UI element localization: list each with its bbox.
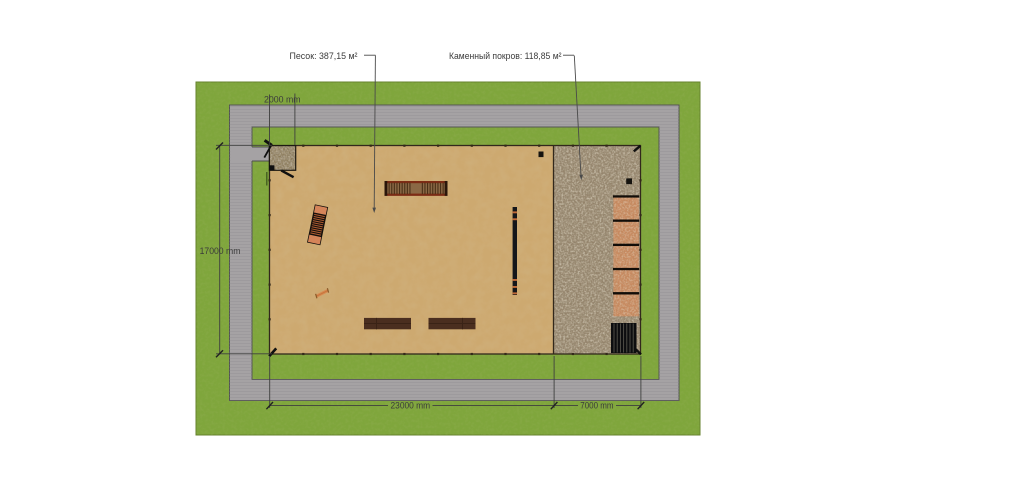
svg-text:23000 mm: 23000 mm: [391, 401, 431, 412]
svg-text:Каменный покров: 118,85 м²: Каменный покров: 118,85 м²: [449, 51, 562, 62]
svg-text:7000 mm: 7000 mm: [580, 401, 613, 412]
svg-text:17000 mm: 17000 mm: [200, 246, 241, 257]
svg-text:Песок: 387,15 м²: Песок: 387,15 м²: [290, 51, 358, 62]
